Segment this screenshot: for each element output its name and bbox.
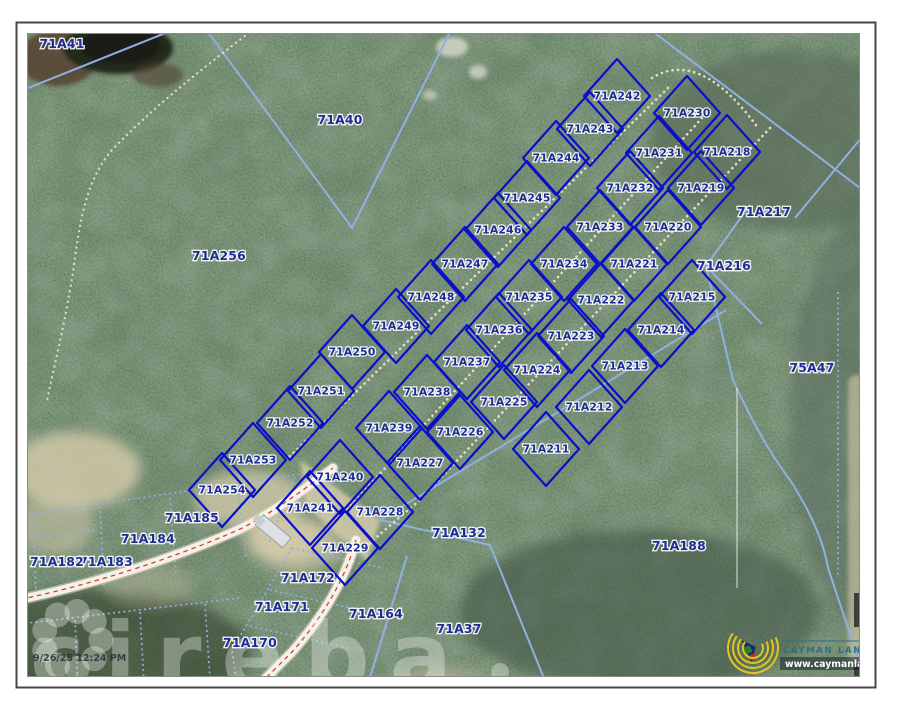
parcel-label: 71A213 xyxy=(601,360,648,373)
parcel-label: 71A164 xyxy=(349,606,403,621)
parcel-label: 71A249 xyxy=(372,320,419,333)
parcel-label: 71A219 xyxy=(677,182,724,195)
parcel-label: 71A41 xyxy=(39,36,84,51)
parcel-label: 71A223 xyxy=(547,330,594,343)
parcel-label: 71A253 xyxy=(229,454,276,467)
parcel-label: 71A233 xyxy=(576,221,623,234)
parcel-label: 71A217 xyxy=(737,204,791,219)
parcel-label: 71A230 xyxy=(663,107,710,120)
parcel-label: 71A228 xyxy=(356,506,403,519)
parcel-label: 71A216 xyxy=(697,258,751,273)
parcel-label: 71A37 xyxy=(436,621,481,636)
parcel-label: 71A242 xyxy=(593,90,640,103)
parcel-label: 71A251 xyxy=(297,385,344,398)
parcel-label: 71A171 xyxy=(255,599,309,614)
parcel-label: 71A40 xyxy=(317,112,362,127)
timestamp: 9/26/25 12:24 PM xyxy=(33,653,126,664)
parcel-label: 71A254 xyxy=(198,484,245,497)
parcel-label: 71A227 xyxy=(396,457,443,470)
parcel-label: 71A250 xyxy=(328,346,375,359)
parcel-label: 71A212 xyxy=(565,401,612,414)
parcel-label: 75A47 xyxy=(789,360,834,375)
parcel-label: 71A239 xyxy=(365,422,412,435)
parcel-label: 71A244 xyxy=(532,152,579,165)
parcel-label: 71A232 xyxy=(606,182,653,195)
parcel-label: 71A229 xyxy=(321,542,368,555)
parcel-label: 71A221 xyxy=(610,258,657,271)
parcel-label: 71A224 xyxy=(513,364,560,377)
parcel-label: 71A246 xyxy=(474,224,521,237)
parcel-label: 71A132 xyxy=(432,525,486,540)
parcel-label: 71A252 xyxy=(266,417,313,430)
parcel-label: 71A188 xyxy=(652,538,706,553)
parcel-label: 71A172 xyxy=(281,570,335,585)
parcel-label: 71A220 xyxy=(644,221,691,234)
parcel-label: 71A243 xyxy=(566,123,613,136)
parcel-label: 71A231 xyxy=(635,147,682,160)
parcel-label: 71A247 xyxy=(441,258,488,271)
parcel-label: 71A240 xyxy=(316,471,363,484)
parcel-label: 71A245 xyxy=(503,192,550,205)
parcel-label: 71A238 xyxy=(403,386,450,399)
parcel-label: 71A237 xyxy=(443,356,490,369)
parcel-map: cireba 71A24271A24371A24471A24571A24671A… xyxy=(0,0,905,710)
parcel-label: 71A222 xyxy=(577,294,624,307)
parcel-label: 71A211 xyxy=(522,443,569,456)
parcel-label: 71A183 xyxy=(79,554,133,569)
parcel-label: 71A235 xyxy=(505,291,552,304)
parcel-label: 71A226 xyxy=(436,426,483,439)
parcel-label: 71A225 xyxy=(480,396,527,409)
parcel-label: 71A234 xyxy=(540,258,587,271)
parcel-label: 71A184 xyxy=(121,531,175,546)
parcel-label: 71A241 xyxy=(286,502,333,515)
parcel-label: 71A185 xyxy=(165,510,219,525)
parcel-label: 71A248 xyxy=(407,291,454,304)
parcel-label: 71A218 xyxy=(703,146,750,159)
parcel-label: 71A215 xyxy=(668,291,715,304)
parcel-label: 71A170 xyxy=(223,635,277,650)
parcel-label: 71A236 xyxy=(475,324,522,337)
parcel-label: 71A256 xyxy=(192,248,246,263)
parcel-label: 71A182 xyxy=(30,554,84,569)
parcel-label: 71A214 xyxy=(637,324,684,337)
